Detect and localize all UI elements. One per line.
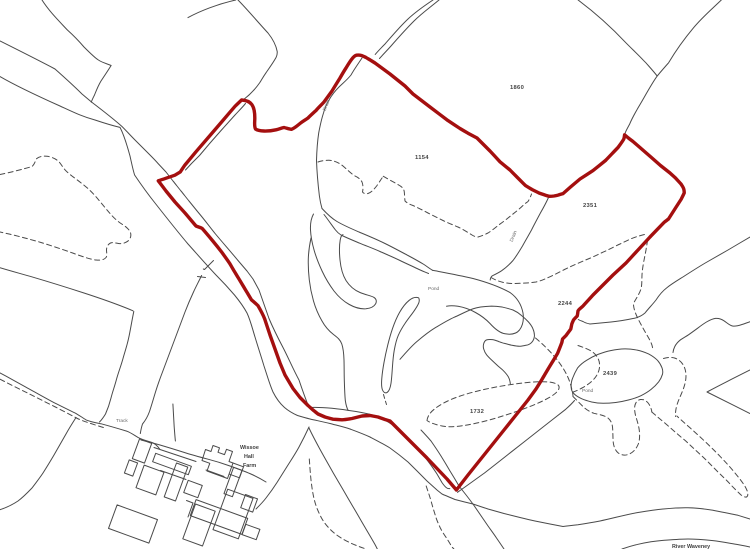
svg-text:Farm: Farm [243, 463, 256, 469]
svg-text:2439: 2439 [603, 371, 618, 377]
svg-text:River Waveney: River Waveney [672, 544, 710, 549]
svg-text:1154: 1154 [415, 155, 429, 161]
svg-text:Pond: Pond [582, 388, 594, 394]
svg-text:2351: 2351 [583, 203, 598, 209]
svg-text:1860: 1860 [510, 85, 524, 91]
svg-text:Track: Track [116, 418, 128, 424]
svg-text:Pond: Pond [428, 286, 440, 292]
svg-text:Drain: Drain [509, 230, 519, 243]
svg-text:2244: 2244 [558, 301, 573, 307]
svg-text:Hall: Hall [244, 454, 254, 460]
svg-text:1732: 1732 [470, 409, 484, 415]
svg-text:Wissoe: Wissoe [240, 445, 259, 451]
